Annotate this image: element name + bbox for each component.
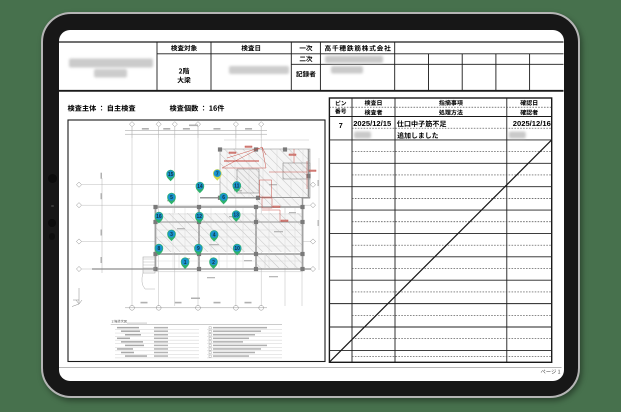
svg-text:3: 3 — [170, 232, 173, 238]
svg-text:6: 6 — [222, 195, 225, 201]
svg-text:13: 13 — [233, 213, 239, 219]
svg-text:15: 15 — [168, 172, 174, 178]
svg-text:7: 7 — [216, 172, 219, 178]
svg-text:14: 14 — [197, 184, 203, 190]
svg-text:11: 11 — [234, 184, 240, 190]
svg-text:16: 16 — [156, 214, 162, 220]
svg-text:4: 4 — [213, 233, 216, 239]
svg-text:10: 10 — [234, 246, 240, 252]
svg-text:8: 8 — [158, 246, 161, 252]
svg-text:5: 5 — [170, 195, 173, 201]
svg-text:7: 7 — [339, 121, 343, 130]
svg-text:2025/12/16: 2025/12/16 — [513, 119, 551, 128]
svg-text:9: 9 — [197, 246, 200, 252]
svg-text:2025/12/15: 2025/12/15 — [353, 119, 392, 128]
svg-text:1: 1 — [184, 260, 187, 266]
svg-text:12: 12 — [197, 214, 203, 220]
svg-text:2: 2 — [212, 260, 215, 266]
